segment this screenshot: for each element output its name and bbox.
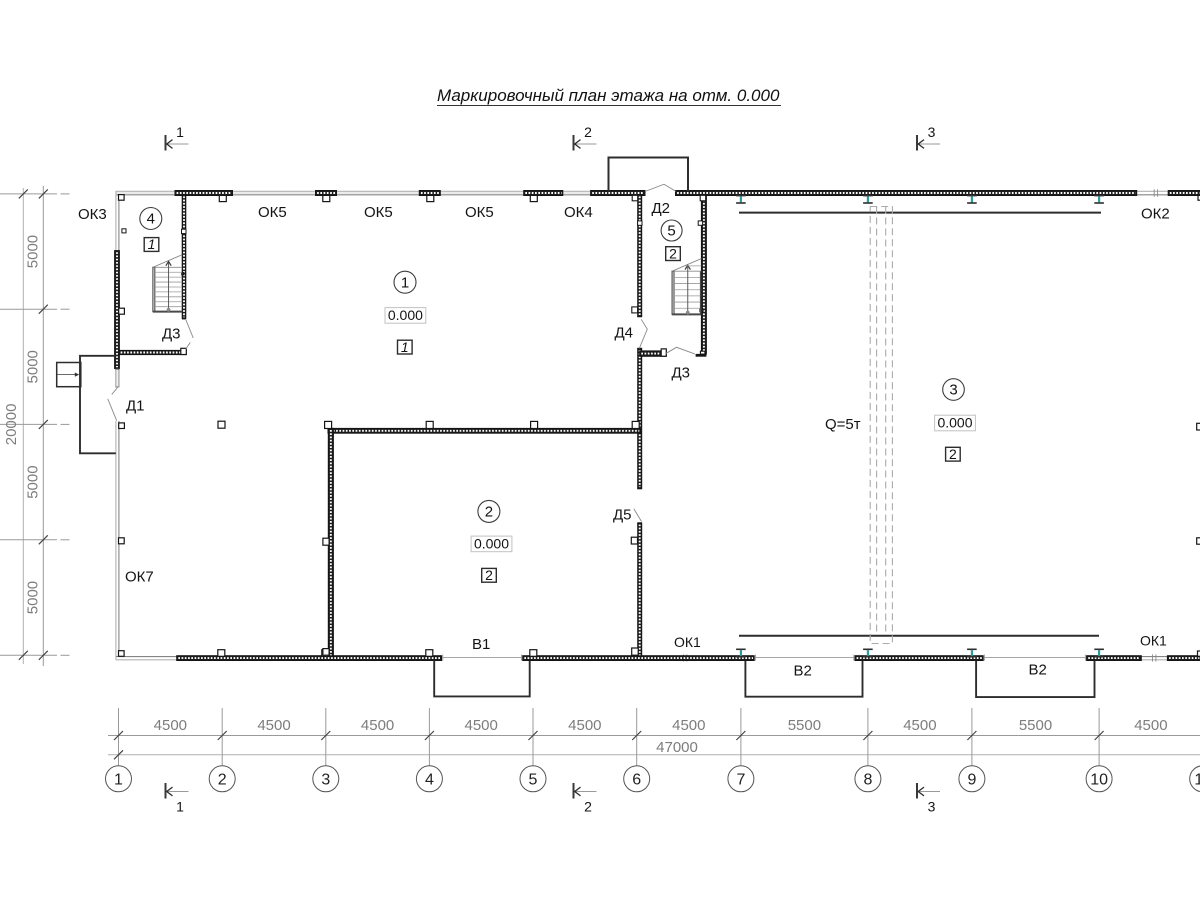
svg-text:Д1: Д1 [126, 398, 145, 415]
svg-text:1: 1 [401, 339, 409, 355]
svg-text:ОК1: ОК1 [1140, 633, 1167, 649]
svg-text:3: 3 [321, 772, 330, 789]
svg-text:6: 6 [632, 772, 641, 789]
svg-text:4500: 4500 [257, 717, 290, 734]
svg-text:ОК3: ОК3 [78, 206, 107, 223]
svg-text:В2: В2 [1029, 662, 1047, 679]
svg-text:5: 5 [667, 223, 675, 240]
svg-text:ОК1: ОК1 [674, 634, 701, 650]
svg-text:5500: 5500 [788, 717, 821, 734]
svg-text:2: 2 [485, 567, 493, 583]
svg-text:3: 3 [928, 799, 936, 815]
svg-text:2: 2 [584, 124, 592, 140]
svg-text:2: 2 [218, 772, 227, 789]
svg-text:7: 7 [736, 772, 745, 789]
svg-text:Д3: Д3 [672, 365, 691, 382]
svg-text:ОК4: ОК4 [564, 204, 593, 221]
svg-text:Q=5т: Q=5т [825, 416, 861, 433]
svg-text:5: 5 [529, 772, 538, 789]
svg-text:20000: 20000 [3, 404, 20, 446]
svg-text:4: 4 [147, 211, 155, 228]
svg-text:5000: 5000 [25, 465, 42, 498]
svg-text:ОК2: ОК2 [1141, 206, 1170, 223]
svg-text:1: 1 [176, 124, 184, 140]
svg-text:2: 2 [669, 245, 677, 261]
svg-text:Д3: Д3 [162, 326, 181, 343]
svg-text:1: 1 [114, 772, 123, 789]
svg-text:ОК7: ОК7 [125, 569, 154, 586]
svg-text:ОК5: ОК5 [364, 204, 393, 221]
svg-text:Д5: Д5 [613, 507, 632, 524]
svg-text:0.000: 0.000 [388, 307, 423, 323]
svg-text:5500: 5500 [1019, 717, 1052, 734]
svg-text:4: 4 [425, 772, 434, 789]
svg-text:3: 3 [949, 382, 957, 399]
svg-text:Д2: Д2 [652, 200, 671, 217]
svg-text:4500: 4500 [672, 717, 705, 734]
svg-text:5000: 5000 [25, 581, 42, 614]
svg-text:4500: 4500 [1134, 717, 1167, 734]
svg-text:4500: 4500 [568, 717, 601, 734]
svg-text:10: 10 [1090, 772, 1108, 789]
svg-text:2: 2 [584, 799, 592, 815]
svg-text:8: 8 [863, 772, 872, 789]
svg-text:11: 11 [1194, 772, 1200, 789]
svg-text:0.000: 0.000 [937, 415, 972, 431]
svg-text:47000: 47000 [656, 739, 698, 756]
svg-text:1: 1 [148, 236, 156, 252]
svg-text:4500: 4500 [154, 717, 187, 734]
svg-text:ОК5: ОК5 [465, 204, 494, 221]
svg-text:В1: В1 [472, 636, 490, 653]
svg-text:3: 3 [928, 124, 936, 140]
svg-text:0.000: 0.000 [474, 536, 509, 552]
svg-text:4500: 4500 [361, 717, 394, 734]
svg-text:В2: В2 [794, 663, 812, 680]
svg-text:2: 2 [949, 446, 957, 462]
svg-text:Маркировочный план этажа на от: Маркировочный план этажа на отм. 0.000 [437, 86, 780, 105]
svg-text:1: 1 [176, 799, 184, 815]
svg-text:5000: 5000 [25, 350, 42, 383]
svg-text:ОК5: ОК5 [258, 204, 287, 221]
svg-text:4500: 4500 [903, 717, 936, 734]
svg-text:1: 1 [401, 274, 409, 291]
svg-text:9: 9 [967, 772, 976, 789]
svg-text:4500: 4500 [465, 717, 498, 734]
svg-text:2: 2 [485, 504, 493, 521]
svg-text:5000: 5000 [25, 235, 42, 268]
svg-text:Д4: Д4 [615, 325, 634, 342]
